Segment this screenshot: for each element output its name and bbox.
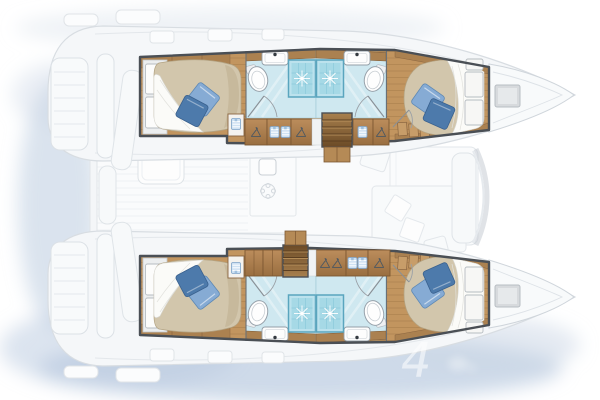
hanger-locker: [373, 119, 389, 145]
watermark-text: 4: [401, 333, 432, 389]
hanger-locker: [316, 250, 346, 276]
cockpit-bench: [99, 166, 116, 224]
stairs-upper: [322, 113, 352, 162]
catamaran-floorplan: 4: [0, 0, 600, 400]
sofa: [452, 153, 476, 243]
floorplan-drawing: 4: [0, 0, 600, 400]
galley-sink: [259, 159, 276, 175]
hanger-locker: [245, 119, 267, 145]
hanger-locker: [291, 119, 312, 145]
stairs-lower: [283, 231, 308, 277]
hanger-locker: [368, 250, 390, 276]
